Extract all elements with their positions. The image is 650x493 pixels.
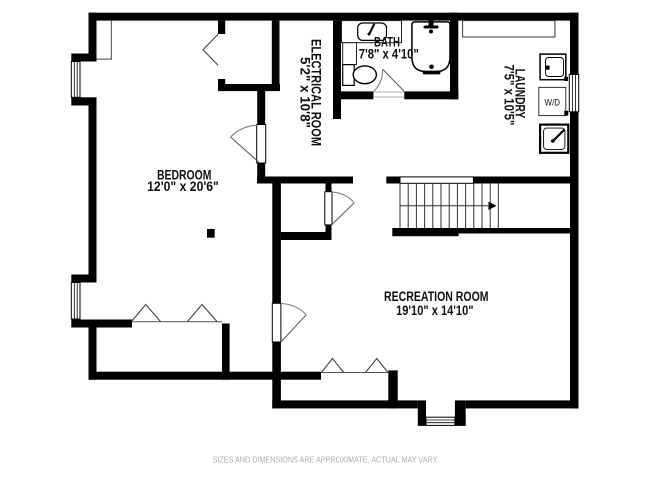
svg-text:12'0" x 20'6": 12'0" x 20'6" — [147, 179, 219, 194]
svg-text:5'2" x 10'8": 5'2" x 10'8" — [298, 57, 313, 128]
svg-text:19'10" x 14'10": 19'10" x 14'10" — [396, 303, 473, 318]
svg-text:RECREATION ROOM: RECREATION ROOM — [384, 289, 489, 304]
svg-text:7'5" x 10'5": 7'5" x 10'5" — [501, 65, 516, 126]
svg-text:7'8" x 4'10": 7'8" x 4'10" — [359, 47, 419, 62]
svg-text:SIZES AND DIMENSIONS ARE APPRO: SIZES AND DIMENSIONS ARE APPROXIMATE, AC… — [213, 455, 439, 465]
svg-text:W/D: W/D — [545, 97, 561, 107]
